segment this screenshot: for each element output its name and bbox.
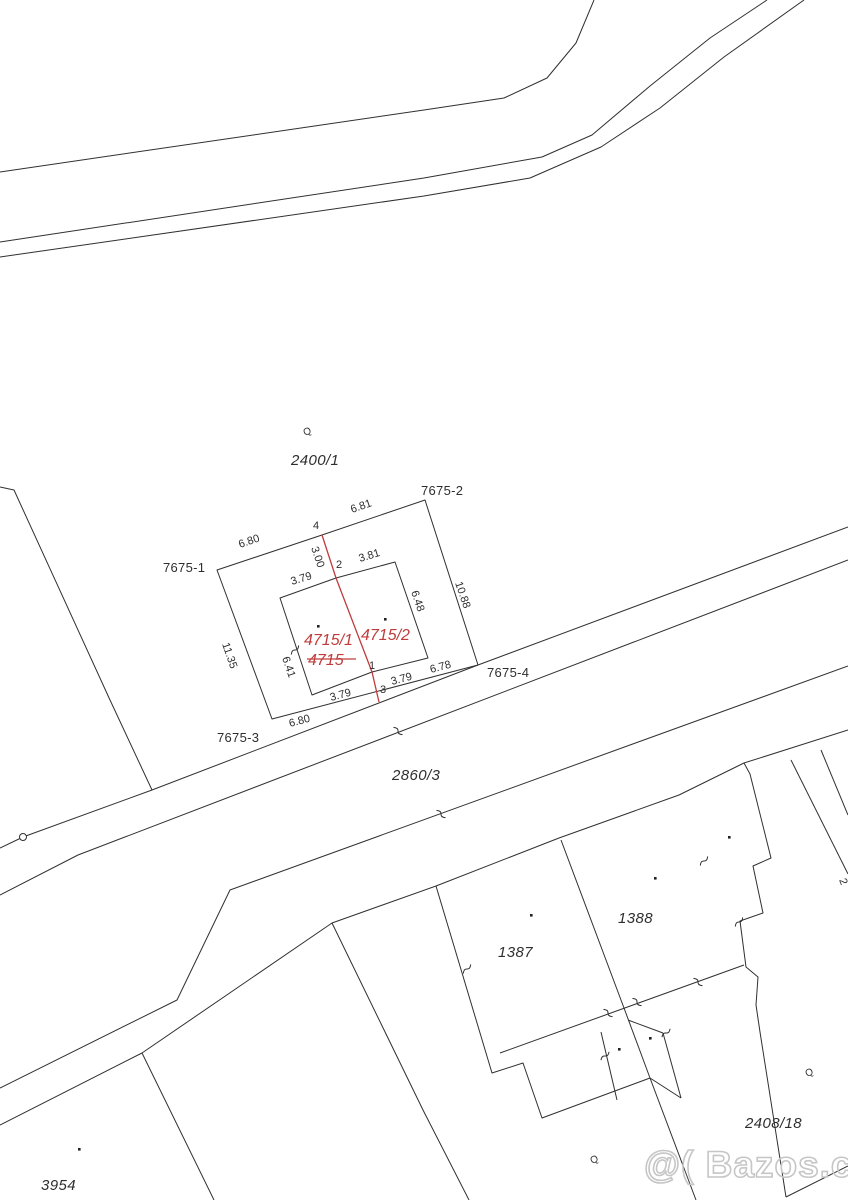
block-top-edge (0, 730, 848, 1125)
road-upper-edge (0, 560, 848, 895)
measurement-label: 3.79 (289, 570, 313, 588)
parcel-dot (618, 1048, 621, 1051)
parcel-label-4715-old: 4715 (308, 652, 344, 669)
measurement-label: 6.78 (429, 659, 453, 676)
parcel-dot (649, 1037, 652, 1040)
fence-tick-icon (733, 917, 744, 926)
parcel-label-3954: 3954 (41, 1177, 76, 1194)
utility-pole-icon: Q (302, 425, 314, 438)
top-road-line-b (0, 0, 767, 242)
parcel-label-4715-1: 4715/1 (304, 632, 353, 649)
parcel-dot (78, 1148, 81, 1151)
parcel-dot (384, 618, 387, 621)
block-bottom-edge (500, 965, 744, 1053)
parcel-dot (728, 836, 731, 839)
small-building-seg-b (628, 1020, 663, 1033)
left-boundary (0, 487, 152, 790)
parcel-label-7675-3: 7675-3 (217, 730, 259, 745)
top-road-line-c (0, 0, 804, 257)
measurement-label: 6.80 (288, 713, 312, 730)
parcel-label-7675-2: 7675-2 (421, 483, 463, 498)
cadastral-map-drawing: 2400/1 7675-1 7675-2 7675-3 7675-4 2860/… (0, 0, 848, 1200)
cadastral-map-page: 2400/1 7675-1 7675-2 7675-3 7675-4 2860/… (0, 0, 848, 1200)
measurement-label: 3.00 (308, 545, 326, 569)
fence-tick-icon (693, 976, 702, 987)
parcel-label-4715-2: 4715/2 (361, 627, 410, 644)
bazos-watermark: @( Bazos.cz (644, 1144, 848, 1186)
right-divider-1 (791, 760, 848, 874)
top-road-line-a (0, 0, 594, 172)
measurement-label: 6.41 (279, 655, 297, 679)
boundary-marker-circle (20, 834, 27, 841)
utility-pole-icon: Q (589, 1153, 601, 1166)
parcel-label-1388: 1388 (618, 910, 653, 927)
parcel-label-1387: 1387 (498, 944, 533, 961)
small-building-seg-a (601, 1032, 617, 1100)
fence-tick-icon (461, 964, 472, 973)
fence-tick-icon (289, 645, 300, 654)
measurement-label: 6.80 (237, 533, 261, 551)
parcel-label-7675-4: 7675-4 (487, 665, 529, 680)
parcel-dot (317, 625, 320, 628)
measurement-label: 3.81 (357, 547, 381, 565)
measurement-labels: 6.80 6.81 3.00 3.79 3.81 6.48 10.88 11.3… (219, 498, 472, 730)
boundary-point-2: 2 (336, 559, 342, 571)
parcel-dot (530, 914, 533, 917)
measurement-label: 3.79 (390, 671, 414, 688)
fence-tick-icon (436, 808, 445, 819)
boundary-point-3: 3 (380, 684, 386, 696)
map-symbols: Q Q Q 2 (302, 425, 848, 1166)
parcel-label-2860-3: 2860/3 (391, 767, 441, 784)
boundary-point-1: 1 (369, 660, 375, 672)
divider-3954-block (332, 923, 469, 1200)
parcel-label-7675-1: 7675-1 (163, 560, 205, 575)
boundary-point-4: 4 (313, 520, 319, 532)
road-upper-strip-line (0, 527, 848, 848)
boundary-point-numbers: 4 2 1 3 (313, 520, 386, 696)
parcel-label-2400-1: 2400/1 (290, 452, 339, 469)
parcel-label-2408-18: 2408/18 (744, 1115, 802, 1132)
measurement-label: 11.35 (219, 641, 239, 670)
fence-tick-icon (698, 856, 709, 865)
fence-tick-icon (599, 1052, 610, 1060)
measurement-label: 3.79 (329, 687, 353, 704)
parcel-labels: 2400/1 7675-1 7675-2 7675-3 7675-4 2860/… (41, 452, 802, 1194)
parcel-3954-east-edge (142, 1053, 214, 1200)
utility-pole-icon: Q (804, 1066, 816, 1079)
fence-ticks (289, 645, 744, 1060)
edge-label-fragment: 2 (836, 877, 848, 887)
right-divider-2 (821, 750, 848, 815)
measurement-label: 6.81 (349, 498, 373, 516)
parcel-dot (654, 877, 657, 880)
road-lower-edge (0, 666, 848, 1088)
